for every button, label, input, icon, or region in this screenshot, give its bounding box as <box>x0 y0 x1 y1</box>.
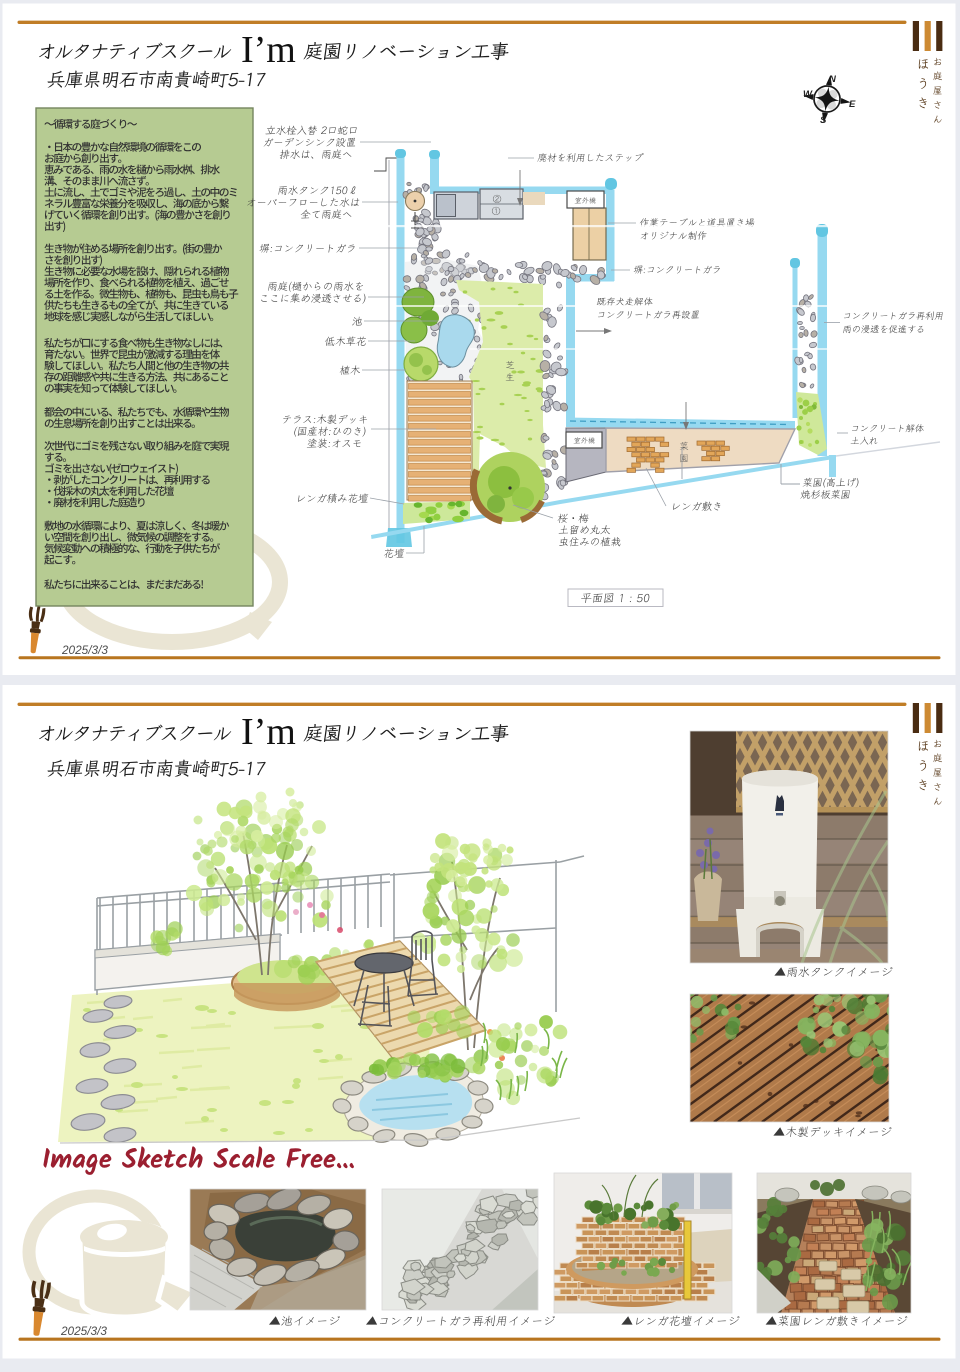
svg-text:E: E <box>849 99 856 110</box>
svg-text:2025/3/3: 2025/3/3 <box>60 1324 107 1338</box>
svg-text:N: N <box>829 74 837 85</box>
svg-text:I’m: I’m <box>241 711 296 753</box>
svg-text:2025/3/3: 2025/3/3 <box>61 643 108 657</box>
svg-text:W: W <box>803 89 813 100</box>
svg-text:I’m: I’m <box>241 29 296 71</box>
svg-text:S: S <box>820 115 827 126</box>
